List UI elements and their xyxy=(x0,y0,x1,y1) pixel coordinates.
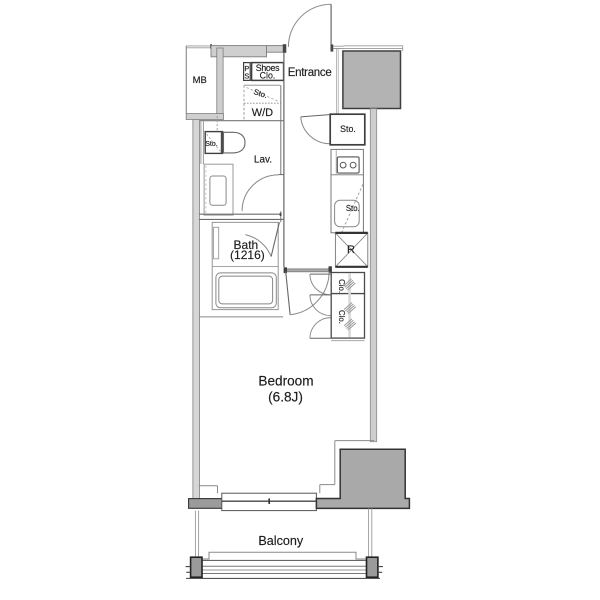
svg-text:(6.8J): (6.8J) xyxy=(268,390,303,405)
svg-text:Sto.: Sto. xyxy=(346,204,360,213)
svg-text:Bedroom: Bedroom xyxy=(258,373,313,388)
svg-text:R: R xyxy=(347,244,355,256)
svg-text:Clo.: Clo. xyxy=(260,71,276,81)
svg-text:S: S xyxy=(244,72,249,81)
svg-text:Sto.: Sto. xyxy=(340,124,356,134)
svg-text:MB: MB xyxy=(193,75,207,86)
svg-text:W/D: W/D xyxy=(252,107,273,119)
svg-text:Clo.: Clo. xyxy=(337,279,346,293)
svg-text:Sto.: Sto. xyxy=(205,141,218,148)
svg-text:Lav.: Lav. xyxy=(254,155,272,166)
svg-text:(1216): (1216) xyxy=(230,248,265,262)
svg-text:Balcony: Balcony xyxy=(258,534,304,548)
svg-text:Clo.: Clo. xyxy=(337,310,346,324)
svg-text:Entrance: Entrance xyxy=(288,67,332,79)
